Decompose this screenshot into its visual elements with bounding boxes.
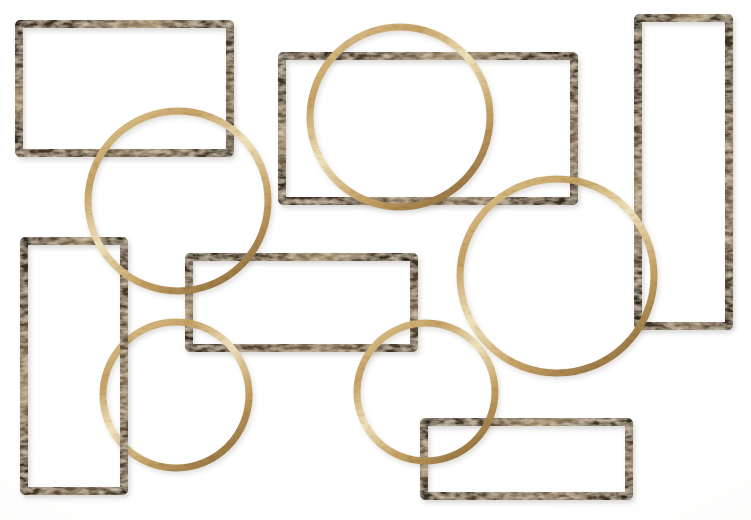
- circle-right-large: [460, 179, 654, 373]
- wall-art-photo: [0, 0, 751, 520]
- rectangle-bottom-right: [424, 422, 629, 496]
- rectangle-top-left: [19, 24, 230, 153]
- wall-art-canvas: [0, 0, 751, 520]
- circle-upper-left: [88, 111, 268, 291]
- rectangle-middle: [189, 257, 414, 348]
